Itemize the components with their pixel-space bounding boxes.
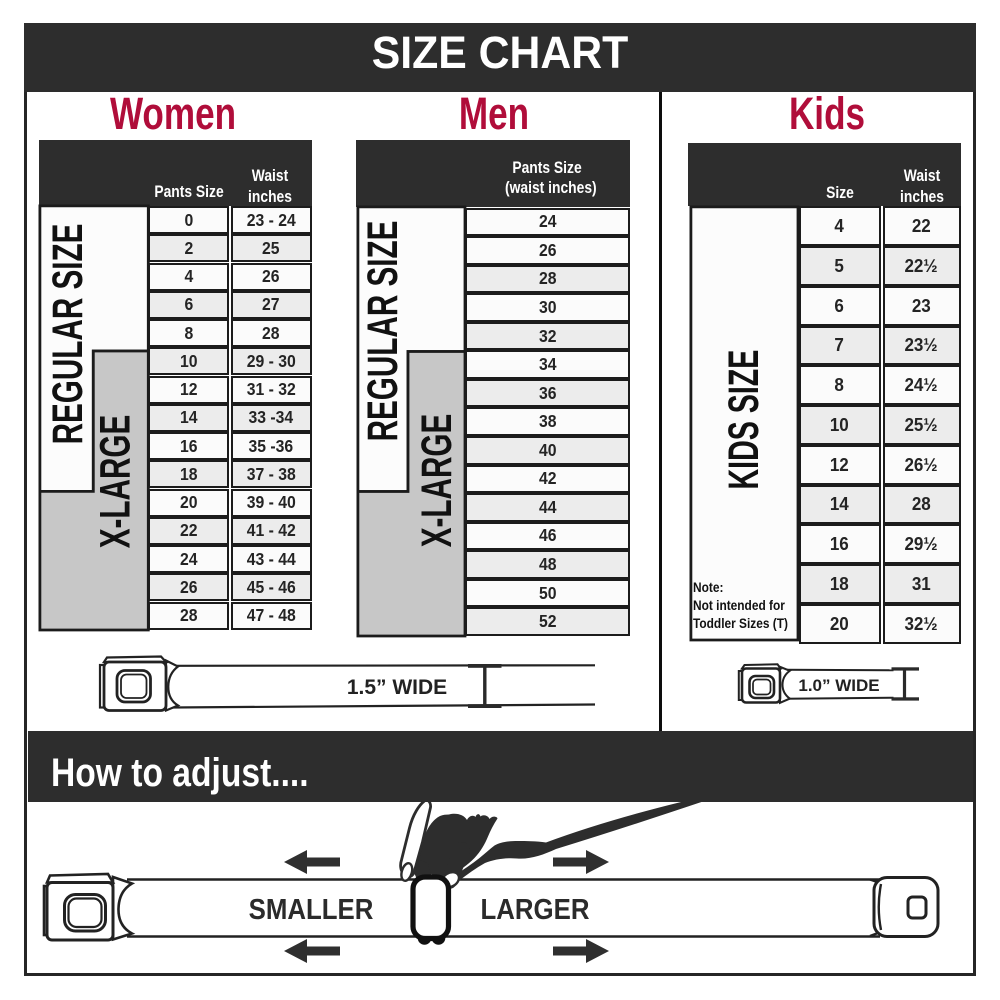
svg-text:1.0” WIDE: 1.0” WIDE [798, 676, 879, 695]
svg-text:REGULAR SIZE: REGULAR SIZE [44, 224, 92, 445]
svg-text:X-LARGE: X-LARGE [91, 415, 139, 549]
svg-text:KIDS SIZE: KIDS SIZE [719, 350, 767, 490]
svg-text:REGULAR SIZE: REGULAR SIZE [359, 221, 407, 442]
svg-text:LARGER: LARGER [481, 893, 590, 926]
svg-text:SMALLER: SMALLER [249, 893, 374, 926]
svg-text:1.5” WIDE: 1.5” WIDE [347, 676, 447, 699]
svg-text:X-LARGE: X-LARGE [413, 414, 461, 548]
